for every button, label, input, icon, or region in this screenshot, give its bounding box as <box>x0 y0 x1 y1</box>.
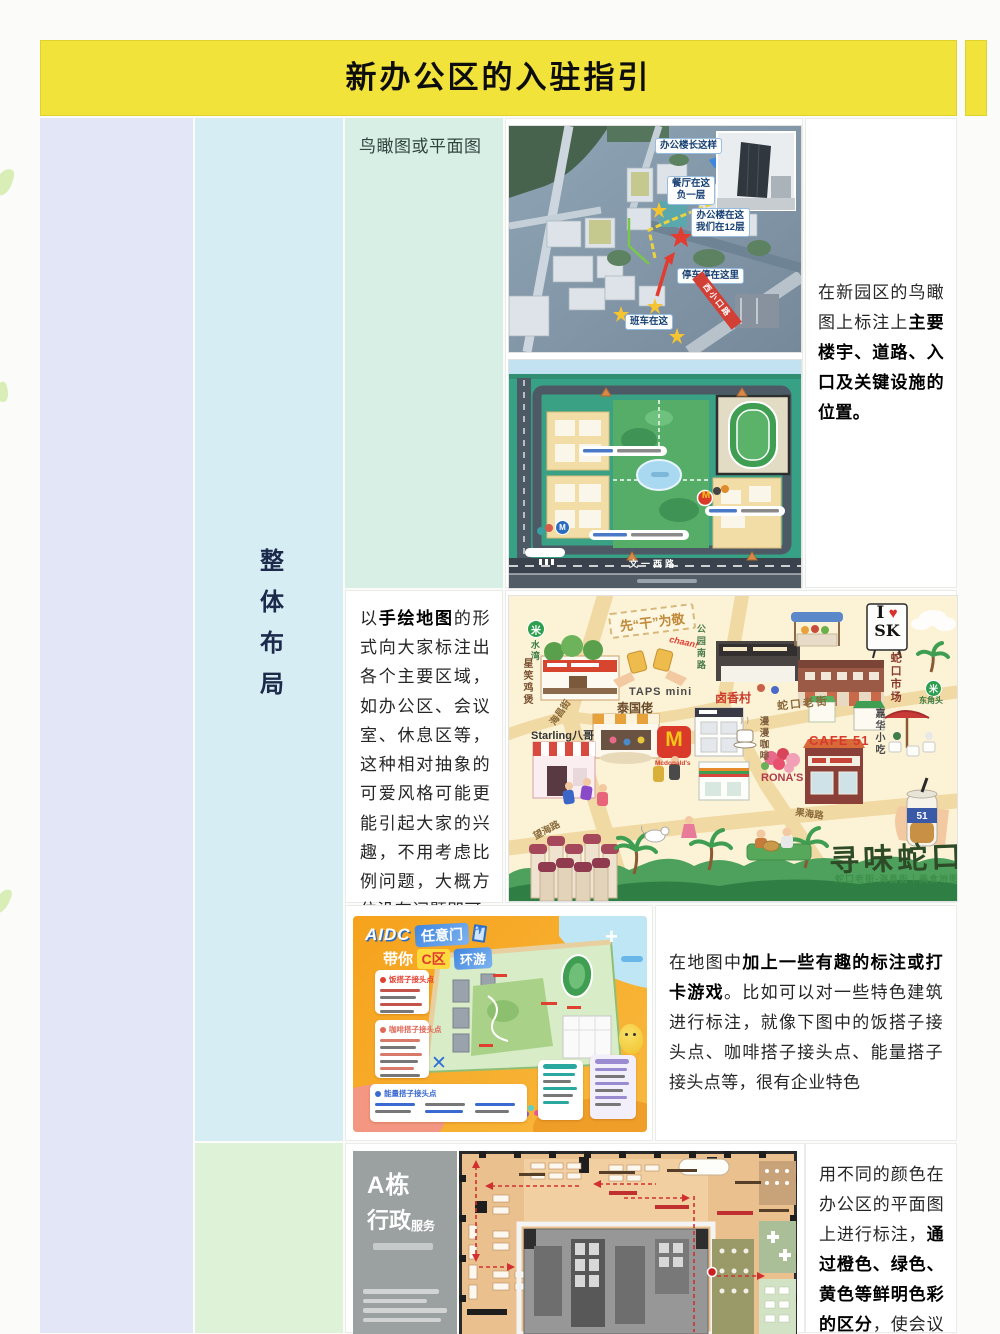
legend-card-teal <box>538 1060 583 1120</box>
legend-dot-icon <box>380 977 386 983</box>
poster-brand: AIDC <box>365 925 411 944</box>
poster-door-badge: 任意门 <box>414 923 469 948</box>
column-left-empty <box>40 118 193 1333</box>
leaf-decoration <box>0 886 14 915</box>
row1-label-cell: 鸟瞰图或平面图 <box>345 118 503 588</box>
row4-image-cell: A栋 行政服务 <box>345 1143 805 1333</box>
legend-dot-icon <box>375 1091 381 1097</box>
row1-image-cell: 办公楼长这样 餐厅在这 负一层 办公楼在这 我们在12层 停车停在这里 班车在这… <box>505 118 803 588</box>
shop-taps-label: TAPS mini <box>629 686 692 698</box>
mascot-figure <box>619 1024 643 1054</box>
poster-title-line1: AIDC 任意门 <box>365 924 486 946</box>
shop-chicken-label: 星笑鸡煲 <box>521 658 532 706</box>
shop-luxiang-label: 卤香村 <box>715 692 751 705</box>
leaf-decoration <box>0 166 16 198</box>
heart-icon: ♥ <box>889 605 898 622</box>
road-gongyuan-label: 公园南路 <box>695 624 705 672</box>
floor-plan-image <box>459 1151 797 1334</box>
campus-plan-image: M M 文一西路 <box>508 359 802 589</box>
row2-text-cell: 以手绘地图的形式向大家标注出各个主要区域，如办公区、会议室、休息区等，这种相对抽… <box>345 590 503 903</box>
market-label: 蛇口市场 <box>889 652 901 704</box>
shop-thai-label: 泰国佬 <box>617 702 653 715</box>
page-title: 新办公区的入驻指引 <box>41 41 956 115</box>
metro-icon: 米 <box>925 680 942 697</box>
aerial-callout-canteen: 餐厅在这 负一层 <box>667 176 715 205</box>
compass-icon: + <box>605 924 618 950</box>
campus-plan-graphic <box>509 360 801 588</box>
mcdonalds-label: Mcdonald's <box>655 760 691 767</box>
section-cell-overall-layout: 整体布局 <box>195 118 343 1141</box>
row1-label: 鸟瞰图或平面图 <box>359 132 482 157</box>
shop-cafe51-label: CAFE 51 <box>809 734 869 748</box>
row4-text-cell: 用不同的颜色在办公区的平面图上进行标注，通过橙色、绿色、黄色等鲜明色彩的区分，使… <box>805 1143 957 1333</box>
row2-image-cell: 米 水湾 星笑鸡煲 先“干”为敬 chaan! TAPS mini 公园南路 卤… <box>505 590 957 903</box>
floor-plan-subtitle-bar <box>373 1243 433 1250</box>
i-love-sk-sign: I ♥ SK <box>868 605 906 649</box>
shop-ronas-label: RONA'S <box>761 772 803 784</box>
section-label: 整体布局 <box>252 548 287 712</box>
row3-right-text: 在地图中加上一些有趣的标注或打卡游戏。比如可以对一些特色建筑进行标注，就像下图中… <box>656 948 956 1098</box>
legend-dot-icon <box>380 1027 386 1033</box>
metro-icon: M <box>555 520 570 535</box>
legend-card-lavender <box>590 1055 636 1119</box>
row3-image-cell: AIDC 任意门 带你 C区 环游 饭搭子接头点 咖啡搭子接头点 能量搭子接头点 <box>345 905 653 1141</box>
floor-function: 行政服务 <box>367 1203 435 1235</box>
shop-starling-label: Starling八哥 <box>531 730 594 742</box>
floor-plan-graphic <box>459 1151 797 1334</box>
shop-jiahua-label: 嘉华小吃 <box>873 708 884 756</box>
row1-text-cell: 在新园区的鸟瞰图上标注上主要楼宇、道路、入口及关键设施的位置。 <box>805 118 957 588</box>
campus-road-label: 文一西路 <box>629 557 677 570</box>
shop-coffee-label: 漫漫咖啡 <box>757 716 767 762</box>
poster-zone-badge: C区 <box>417 949 449 969</box>
row2-left-text: 以手绘地图的形式向大家标注出各个主要区域，如办公区、会议室、休息区等，这种相对抽… <box>346 591 502 926</box>
section-cell-next <box>195 1143 343 1333</box>
row1-right-text: 在新园区的鸟瞰图上标注上主要楼宇、道路、入口及关键设施的位置。 <box>806 278 956 428</box>
mcdonalds-icon: M <box>699 490 713 504</box>
metro-icon: 米 <box>527 620 545 638</box>
aerial-callout-building: 办公楼长这样 <box>655 138 722 154</box>
row4-right-text: 用不同的颜色在办公区的平面图上进行标注，通过橙色、绿色、黄色等鲜明色彩的区分，使… <box>806 1144 956 1333</box>
document-title-bar: 新办公区的入驻指引 <box>40 40 957 116</box>
legend-card-meal: 饭搭子接头点 <box>375 970 429 1014</box>
poster-image: AIDC 任意门 带你 C区 环游 饭搭子接头点 咖啡搭子接头点 能量搭子接头点 <box>353 916 647 1132</box>
legend-card-energy: 能量搭子接头点 <box>370 1084 527 1122</box>
aerial-view-image: 办公楼长这样 餐厅在这 负一层 办公楼在这 我们在12层 停车停在这里 班车在这… <box>508 125 802 353</box>
cup-51-label: 51 <box>907 811 937 822</box>
aerial-callout-office: 办公楼在这 我们在12层 <box>691 208 750 237</box>
x-marker: ✕ <box>431 1052 447 1075</box>
row3-text-cell: 在地图中加上一些有趣的标注或打卡游戏。比如可以对一些特色建筑进行标注，就像下图中… <box>655 905 957 1141</box>
leaf-decoration <box>0 381 10 403</box>
aerial-callout-shuttle: 班车在这 <box>625 314 673 330</box>
legend-card-coffee: 咖啡搭子接头点 <box>375 1020 429 1078</box>
poster-title-line2: 带你 C区 环游 <box>383 948 492 969</box>
floor-plan-info-panel: A栋 行政服务 <box>353 1151 457 1334</box>
map-subtitle: 蛇口老街-海昌街｜美食地图 <box>835 872 958 885</box>
mcdonalds-icon: M <box>657 728 691 752</box>
floor-plan-spec-bars <box>363 1289 447 1322</box>
station-dongjiaotou-label: 东角头 <box>919 697 943 706</box>
building-name: A栋 <box>367 1165 410 1200</box>
title-bar-right-sliver <box>965 40 987 116</box>
hand-drawn-map-image: 米 水湾 星笑鸡煲 先“干”为敬 chaan! TAPS mini 公园南路 卤… <box>508 595 958 902</box>
